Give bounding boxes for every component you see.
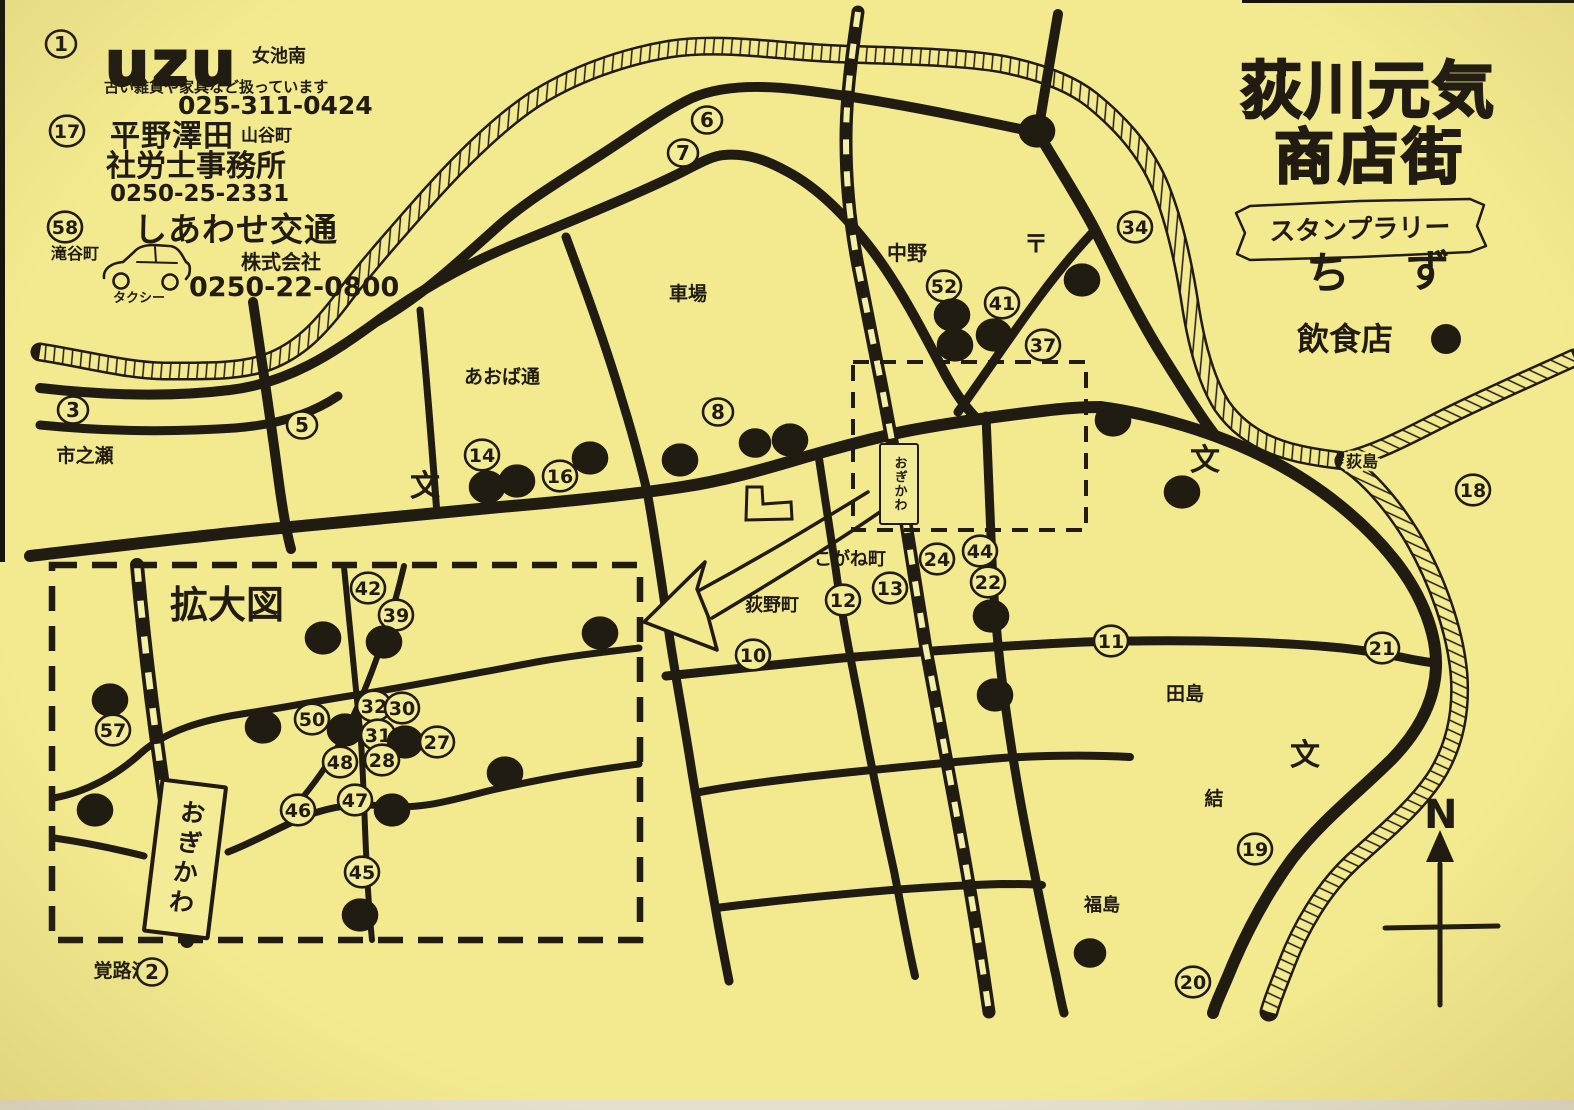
stamp-number: 13 bbox=[877, 578, 903, 600]
stamp-42: 42 bbox=[351, 573, 385, 604]
stamp-number: 24 bbox=[924, 549, 950, 571]
stamp-19: 19 bbox=[1238, 834, 1272, 865]
stamp-number: 15 bbox=[577, 448, 603, 470]
school-icon: 文 bbox=[1290, 738, 1320, 773]
title-subtitle-char2: ず bbox=[1406, 246, 1450, 297]
stamp-53: 53 bbox=[938, 330, 972, 361]
stamp-rally-map-page: N 荻川元気 商店街 スタンプラリー ち ず 飲食店 uzu 女池南 古い雑貨や… bbox=[0, 0, 1574, 1110]
stamp-13: 13 bbox=[873, 573, 907, 604]
stamp-58: 58 bbox=[48, 212, 82, 243]
stamp-number: 39 bbox=[383, 605, 409, 627]
stamp-number: 48 bbox=[327, 752, 353, 774]
stamp-59: 59 bbox=[773, 425, 807, 456]
stamp-number: 19 bbox=[1242, 839, 1268, 861]
ad-shiawase-vehicle: タクシー bbox=[113, 291, 165, 306]
stamp-56: 56 bbox=[93, 685, 127, 716]
stamp-10: 10 bbox=[736, 640, 770, 671]
compass-letter: N bbox=[1424, 792, 1457, 838]
stamp-number: 3 bbox=[66, 398, 80, 422]
stamp-number: 33 bbox=[1100, 410, 1126, 432]
ad-uzu-area: 女池南 bbox=[252, 45, 306, 67]
stamp-55: 55 bbox=[78, 795, 112, 826]
stamp-number: 22 bbox=[975, 572, 1001, 594]
stamp-6: 6 bbox=[692, 107, 722, 134]
stamp-number: 27 bbox=[424, 732, 450, 754]
stamp-54: 54 bbox=[935, 300, 969, 331]
stamp-number: 7 bbox=[676, 141, 690, 165]
stamp-number: 18 bbox=[1460, 480, 1486, 502]
stamp-3: 3 bbox=[58, 397, 88, 424]
stamp-number: 23 bbox=[978, 606, 1004, 628]
stamp-47: 47 bbox=[338, 785, 372, 816]
stamp-60: 60 bbox=[663, 445, 697, 476]
stamp-61: 61 bbox=[978, 680, 1012, 711]
stamp-15: 15 bbox=[573, 443, 607, 474]
stamp-number: 28 bbox=[369, 750, 395, 772]
stamp-number: 43 bbox=[347, 905, 373, 927]
stamp-number: 46 bbox=[285, 800, 311, 822]
scan-strip bbox=[0, 1100, 1574, 1110]
stamp-number: 37 bbox=[1030, 335, 1056, 357]
stamp-24: 24 bbox=[920, 544, 954, 575]
ad-shiawase-phone: 0250-22-0800 bbox=[189, 272, 399, 303]
stamp-number: 61 bbox=[982, 685, 1008, 707]
stamp-38: 38 bbox=[367, 627, 401, 658]
place-label: 荻島 bbox=[1346, 452, 1378, 471]
stamp-5: 5 bbox=[287, 412, 317, 439]
stamp-number: 55 bbox=[82, 800, 108, 822]
stamp-40: 40 bbox=[1020, 116, 1054, 147]
stamp-number: 60 bbox=[667, 450, 693, 472]
stamp-number: 14 bbox=[469, 445, 495, 467]
stamp-number: 6 bbox=[700, 108, 714, 132]
stamp-number: 47 bbox=[342, 790, 368, 812]
stamp-number: 32 bbox=[361, 696, 387, 718]
stamp-number: 63 bbox=[504, 471, 530, 493]
stamp-number: 21 bbox=[1369, 638, 1395, 660]
stamp-20: 20 bbox=[1176, 967, 1210, 998]
stamp-35: 35 bbox=[1065, 265, 1099, 296]
stamp-64: 64 bbox=[488, 758, 522, 789]
place-label: こがね町 bbox=[814, 548, 886, 570]
stamp-18: 18 bbox=[1456, 475, 1490, 506]
ad-uzu: uzu 女池南 古い雑貨や家具など扱っています 025-311-0424 bbox=[104, 27, 373, 120]
title-block: 荻川元気 商店街 スタンプラリー ち ず bbox=[1236, 54, 1496, 299]
stamp-number: 2 bbox=[145, 960, 159, 984]
stamp-number: 40 bbox=[1024, 121, 1050, 143]
stamp-number: 57 bbox=[100, 720, 126, 742]
stamp-45: 45 bbox=[345, 857, 379, 888]
stamp-12: 12 bbox=[826, 585, 860, 616]
ad-hirano-name2: 社労士事務所 bbox=[106, 149, 286, 184]
stamp-51: 51 bbox=[306, 623, 340, 654]
stamp-number: 54 bbox=[939, 305, 965, 327]
stamp-11: 11 bbox=[1094, 626, 1128, 657]
ad-shiawase-company: 株式会社 bbox=[241, 250, 321, 274]
building-outline bbox=[746, 487, 792, 520]
place-label: 荻野町 bbox=[745, 594, 799, 616]
stamp-number: 12 bbox=[830, 590, 856, 612]
ad-hirano-area: 山谷町 bbox=[241, 126, 292, 146]
stamp-48: 48 bbox=[323, 747, 357, 778]
enlarged-map-label: 拡大図 bbox=[170, 583, 284, 627]
stamp-27: 27 bbox=[420, 727, 454, 758]
stamp-8: 8 bbox=[703, 399, 733, 426]
stamp-44: 44 bbox=[963, 536, 997, 567]
stamp-17: 17 bbox=[50, 116, 84, 147]
stamp-number: 52 bbox=[931, 276, 957, 298]
ad-shiawase-area: 滝谷町 bbox=[51, 244, 99, 263]
legend-restaurants: 飲食店 bbox=[1297, 320, 1461, 358]
place-label: 中野 bbox=[887, 241, 927, 265]
stamp-number: 59 bbox=[777, 430, 803, 452]
stamp-57: 57 bbox=[96, 715, 130, 746]
stamp-62: 62 bbox=[470, 472, 504, 503]
stamp-1: 1 bbox=[46, 31, 76, 58]
stamp-number: 41 bbox=[989, 293, 1015, 315]
scan-edge-top bbox=[1242, 0, 1574, 3]
stamp-33: 33 bbox=[1096, 405, 1130, 436]
stamp-22: 22 bbox=[971, 567, 1005, 598]
stamp-number: 25 bbox=[1169, 482, 1195, 504]
place-label: 田島 bbox=[1166, 682, 1204, 705]
stamp-52: 52 bbox=[927, 271, 961, 302]
scan-edge-left bbox=[0, 0, 5, 562]
stamp-2: 2 bbox=[137, 959, 167, 986]
ad-shiawase: しあわせ交通 滝谷町 株式会社 0250-22-0800 タクシー bbox=[51, 210, 399, 306]
taxi-car-icon bbox=[104, 245, 190, 290]
stamp-number: 10 bbox=[740, 645, 766, 667]
stamp-number: 4 bbox=[1083, 941, 1097, 965]
map-canvas: N 荻川元気 商店街 スタンプラリー ち ず 飲食店 uzu 女池南 古い雑貨や… bbox=[0, 0, 1574, 1110]
stamp-number: 66 bbox=[250, 717, 276, 739]
stamp-number: 49 bbox=[332, 720, 358, 742]
ad-hirano-phone: 0250-25-2331 bbox=[110, 181, 289, 207]
place-label: 車場 bbox=[669, 282, 707, 305]
stamp-66: 66 bbox=[246, 712, 280, 743]
ad-shiawase-name: しあわせ交通 bbox=[134, 210, 338, 249]
stamp-28: 28 bbox=[365, 745, 399, 776]
stamp-9: 9 bbox=[740, 430, 770, 457]
stamp-7: 7 bbox=[668, 140, 698, 167]
title-ribbon-text: スタンプラリー bbox=[1269, 213, 1451, 248]
stamp-43: 43 bbox=[343, 900, 377, 931]
stamp-26: 26 bbox=[375, 795, 409, 826]
stamp-4: 4 bbox=[1075, 940, 1105, 967]
school-icon: 文 bbox=[410, 469, 440, 504]
stamp-21: 21 bbox=[1365, 633, 1399, 664]
stamp-49: 49 bbox=[328, 715, 362, 746]
legend-label: 飲食店 bbox=[1297, 320, 1393, 358]
stamp-number: 8 bbox=[711, 400, 725, 424]
stamp-number: 35 bbox=[1069, 270, 1095, 292]
stamp-63: 63 bbox=[500, 466, 534, 497]
stamp-36: 36 bbox=[583, 618, 617, 649]
stamp-50: 50 bbox=[295, 704, 329, 735]
stamp-number: 16 bbox=[547, 466, 573, 488]
stamp-number: 1 bbox=[54, 32, 68, 56]
stamp-41: 41 bbox=[985, 288, 1019, 319]
stamp-number: 36 bbox=[587, 623, 613, 645]
stamp-23: 23 bbox=[974, 601, 1008, 632]
stamp-number: 51 bbox=[310, 628, 336, 650]
stamp-number: 11 bbox=[1098, 631, 1124, 653]
stamp-16: 16 bbox=[543, 461, 577, 492]
stamp-number: 30 bbox=[389, 698, 415, 720]
place-label: 市之瀬 bbox=[56, 444, 113, 467]
stamp-37: 37 bbox=[1026, 330, 1060, 361]
stamp-number: 38 bbox=[371, 632, 397, 654]
stamp-number: 62 bbox=[474, 477, 500, 499]
title-subtitle-char1: ち bbox=[1306, 248, 1350, 299]
stamp-number: 44 bbox=[967, 541, 993, 563]
stamp-number: 64 bbox=[492, 763, 518, 785]
stamp-number: 17 bbox=[54, 121, 80, 143]
stamp-65: 65 bbox=[977, 320, 1011, 351]
place-label: 結 bbox=[1204, 787, 1223, 810]
post-office-icon: 〒 bbox=[1024, 230, 1048, 258]
stamp-34: 34 bbox=[1118, 212, 1152, 243]
stamp-number: 53 bbox=[942, 335, 968, 357]
ad-hirano: 平野澤田 山谷町 社労士事務所 0250-25-2331 bbox=[106, 119, 292, 207]
stamp-number: 5 bbox=[295, 413, 309, 437]
stamp-25: 25 bbox=[1165, 477, 1199, 508]
restaurant-dot-icon bbox=[1431, 324, 1461, 354]
stamp-number: 58 bbox=[52, 217, 78, 239]
stamp-number: 45 bbox=[349, 862, 375, 884]
place-label: あおば通 bbox=[464, 366, 541, 388]
stamp-46: 46 bbox=[281, 795, 315, 826]
stamp-number: 34 bbox=[1122, 217, 1148, 239]
stamp-14: 14 bbox=[465, 440, 499, 471]
stamp-30: 30 bbox=[385, 693, 419, 724]
stamp-number: 20 bbox=[1180, 972, 1206, 994]
school-icon: 文 bbox=[1190, 443, 1220, 478]
stamp-number: 50 bbox=[299, 709, 325, 731]
stamp-number: 65 bbox=[981, 325, 1007, 347]
stamp-number: 9 bbox=[748, 431, 762, 455]
title-line1: 荻川元気 bbox=[1240, 54, 1496, 127]
stamp-number: 26 bbox=[379, 800, 405, 822]
ad-uzu-phone: 025-311-0424 bbox=[178, 91, 373, 120]
station-sign-ogikawa: おぎかわ bbox=[879, 443, 919, 525]
stamp-number: 42 bbox=[355, 578, 381, 600]
title-line2: 商店街 bbox=[1274, 123, 1466, 193]
stamp-number: 56 bbox=[97, 690, 123, 712]
place-label: 福島 bbox=[1083, 894, 1120, 916]
